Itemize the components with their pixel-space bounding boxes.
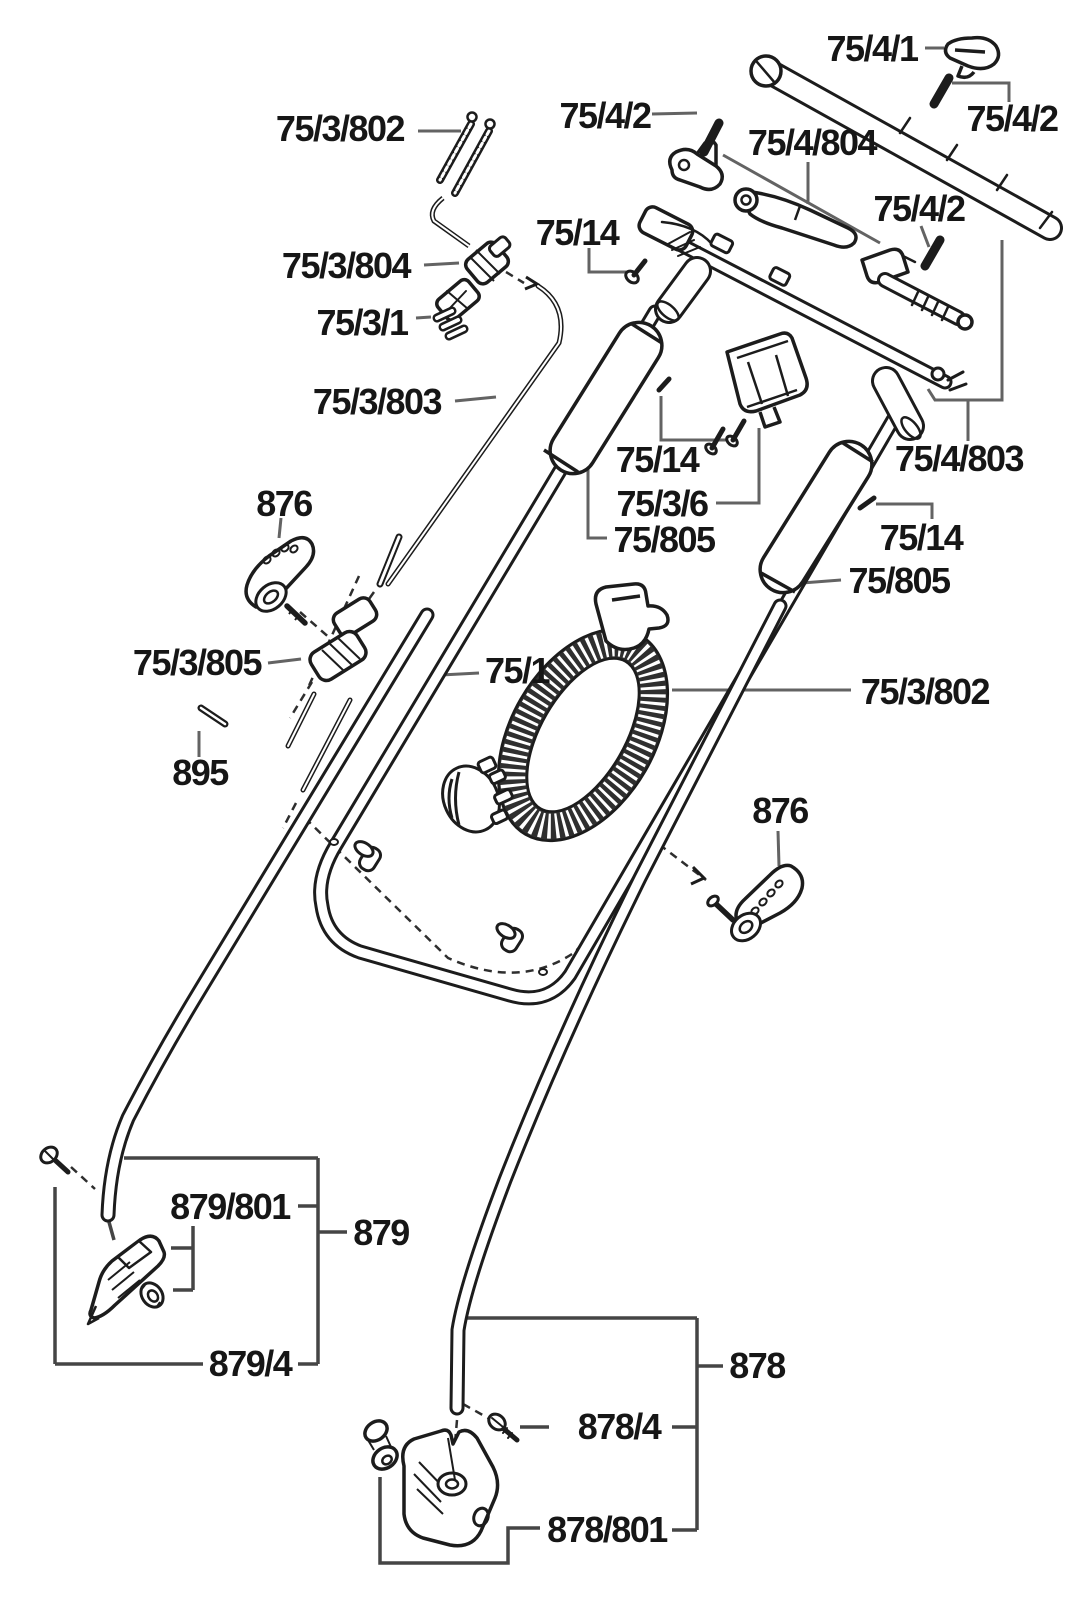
part-label-75-4-1: 75/4/1 [826,31,917,67]
part-label-75-3-805: 75/3/805 [133,645,261,681]
part-label-75-805-center: 75/805 [613,522,714,558]
part-label-75-3-802-top: 75/3/802 [276,111,404,147]
part-label-75-3-803: 75/3/803 [313,384,441,420]
bell-crank-lever [670,141,723,189]
tube-clamp-75-3-805 [307,595,380,684]
lower-handle-tube-left [108,615,427,1215]
pin-895 [201,708,225,724]
cable-clamp-75-3-804 [463,235,512,286]
part-label-876-right: 876 [752,793,808,829]
funnel-guide-75-3-6 [727,333,807,427]
handle-crossbar [636,204,966,442]
cable-clip-75-3-1 [434,277,481,336]
cable-elbow [432,198,469,246]
screw-878-4 [486,1411,517,1440]
part-label-75-4-2-topright: 75/4/2 [966,101,1057,137]
part-label-75-1: 75/1 [485,653,549,689]
lower-housing-878-801 [403,1430,498,1546]
retainer-clip [945,38,998,78]
part-label-878-801: 878/801 [547,1512,667,1548]
part-label-878: 878 [729,1348,785,1384]
lower-handle-tube-right [457,606,780,1408]
wing-knob-right-876 [706,865,803,946]
part-label-879-4: 879/4 [209,1346,292,1382]
part-label-75-3-802-right: 75/3/802 [861,674,989,710]
part-label-879-801: 879/801 [170,1189,290,1225]
part-label-75-805-right: 75/805 [848,563,949,599]
screws-pair-75-14 [704,421,744,456]
part-label-75-3-804: 75/3/804 [282,248,410,284]
screw-879 [38,1144,68,1172]
part-label-895: 895 [172,755,228,791]
swivel-piece-878 [361,1417,401,1474]
part-label-75-4-803: 75/4/803 [895,441,1023,477]
wing-knob-left-876 [246,538,314,623]
part-label-75-14-top: 75/14 [536,215,619,251]
cable-plug-connector [432,756,513,841]
part-label-878-4: 878/4 [578,1409,661,1445]
throttle-lever-with-spring [862,249,972,329]
part-label-876-left: 876 [256,486,312,522]
parts-diagram-page: 75/3/802 75/4/2 75/4/1 75/4/2 75/4/804 7… [0,0,1089,1600]
part-label-75-14-center: 75/14 [616,442,699,478]
screw-75-14-top [623,261,645,285]
part-label-75-3-6: 75/3/6 [616,486,707,522]
part-label-75-4-804: 75/4/804 [748,125,876,161]
spring-bolt-set-75-3-802 [440,113,495,194]
part-label-75-3-1: 75/3/1 [316,305,407,341]
part-label-75-4-2-mid: 75/4/2 [873,191,964,227]
construction-dashes [71,272,706,1478]
leader-lines [199,48,1009,866]
part-label-75-14-right: 75/14 [880,520,963,556]
latch-bracket-879-801 [88,1236,164,1324]
cable-hook-bracket [595,584,668,650]
bow-grommet-plugs [352,839,525,955]
part-label-75-4-2-topleft: 75/4/2 [559,98,650,134]
part-label-879: 879 [353,1215,409,1251]
